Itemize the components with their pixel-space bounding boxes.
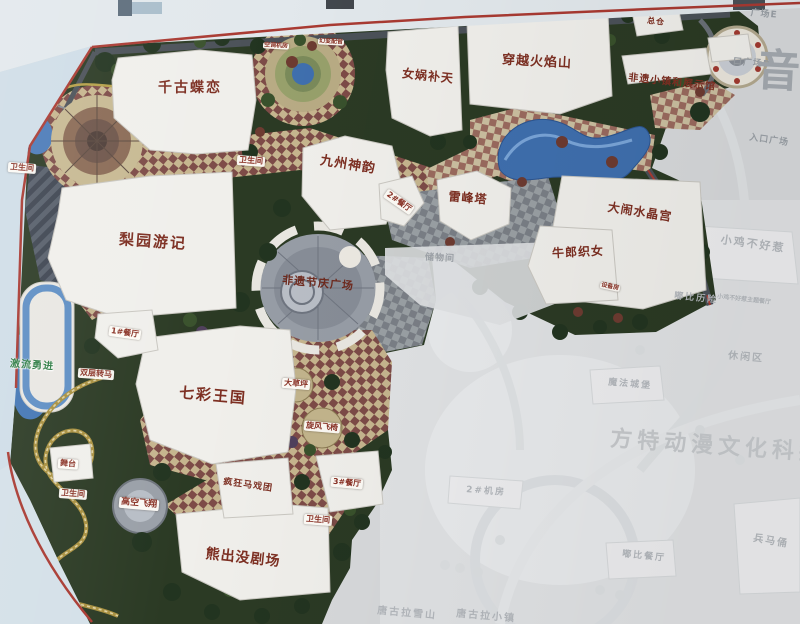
log-flume-ride [20,282,74,412]
facility-label-restroom-south: 卫生间 [304,514,333,526]
facility-label-restroom-center: 卫生间 [237,155,266,167]
facility-label-restroom-stage: 卫生间 [59,488,88,500]
attraction-label-qiangu-dielian: 千古蝶恋 [158,81,222,95]
park-map-illustration [0,0,800,624]
facility-label-restroom-nw: 卫生间 [8,162,37,174]
facility-label-kongtiao-jifang: 空调机房 [263,42,289,49]
facility-label-huanbian-peiyin: 幻变配音 [318,38,344,45]
attraction-label-liyuan-youji: 梨园游记 [119,232,188,252]
watermark-text-yin: 音 [755,49,800,95]
attraction-label-chuanyue-huoyanshan: 穿越火焰山 [502,54,573,71]
attraction-label-leifengta: 雷峰塔 [448,190,488,205]
facility-label-chuwujian: 储物间 [425,254,455,265]
facility-label-wutai: 舞台 [58,458,79,469]
park-map-photo: 千古蝶恋 女娲补天 穿越火焰山 总仓 广场E 口广场D 入口广场 非遗小镇和展示… [0,0,800,624]
attraction-label-niulang-zhinv: 牛郎织女 [552,245,605,260]
